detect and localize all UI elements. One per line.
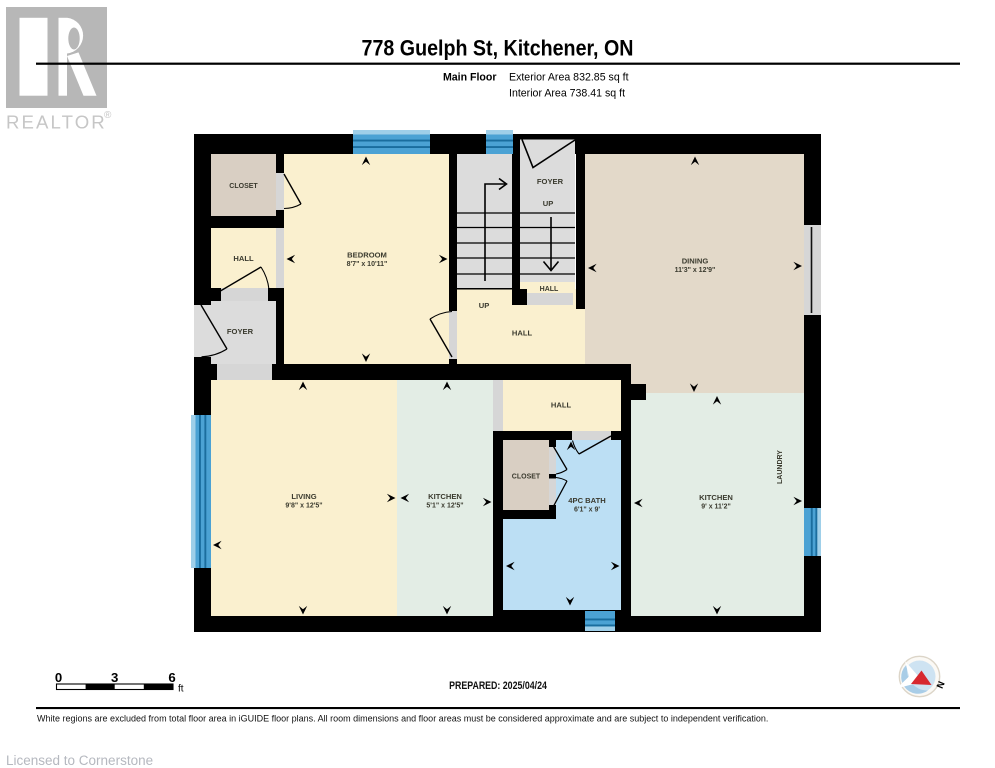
svg-text:FOYER: FOYER <box>227 327 254 336</box>
svg-text:HALL: HALL <box>540 286 559 293</box>
svg-text:8'7" x 10'11": 8'7" x 10'11" <box>347 261 388 268</box>
svg-text:LAUNDRY: LAUNDRY <box>777 450 784 484</box>
svg-text:UP: UP <box>543 199 554 208</box>
svg-text:REALTOR: REALTOR <box>6 112 107 133</box>
svg-text:5'1" x 12'5": 5'1" x 12'5" <box>426 503 463 510</box>
svg-text:778 Guelph St, Kitchener, ON: 778 Guelph St, Kitchener, ON <box>362 36 634 61</box>
svg-text:DINING: DINING <box>682 257 709 266</box>
svg-text:0: 0 <box>55 670 62 685</box>
svg-text:Interior Area 738.41 sq ft: Interior Area 738.41 sq ft <box>509 88 625 100</box>
svg-text:White regions are excluded fro: White regions are excluded from total fl… <box>37 714 768 724</box>
svg-text:HALL: HALL <box>512 329 533 338</box>
svg-text:LIVING: LIVING <box>291 492 316 501</box>
svg-text:Exterior Area 832.85 sq ft: Exterior Area 832.85 sq ft <box>509 72 629 84</box>
svg-text:FOYER: FOYER <box>537 177 564 186</box>
svg-text:9' x 11'2": 9' x 11'2" <box>701 504 731 511</box>
svg-text:CLOSET: CLOSET <box>229 183 258 190</box>
svg-text:®: ® <box>104 110 112 121</box>
svg-text:HALL: HALL <box>551 401 572 410</box>
svg-text:Main Floor: Main Floor <box>443 72 497 84</box>
svg-text:HALL: HALL <box>233 254 254 263</box>
svg-text:6: 6 <box>168 670 175 685</box>
svg-text:ft: ft <box>178 684 184 695</box>
svg-text:KITCHEN: KITCHEN <box>699 493 733 502</box>
svg-text:4PC BATH: 4PC BATH <box>568 496 605 505</box>
svg-text:6'1" x 9': 6'1" x 9' <box>574 507 600 514</box>
svg-text:CLOSET: CLOSET <box>512 474 541 481</box>
svg-text:9'8" x 12'5": 9'8" x 12'5" <box>285 503 322 510</box>
svg-text:11'3" x 12'9": 11'3" x 12'9" <box>675 267 716 274</box>
svg-text:PREPARED: 2025/04/24: PREPARED: 2025/04/24 <box>449 680 547 692</box>
svg-text:BEDROOM: BEDROOM <box>347 251 387 260</box>
svg-text:UP: UP <box>479 301 490 310</box>
svg-text:3: 3 <box>111 670 118 685</box>
svg-text:KITCHEN: KITCHEN <box>428 492 462 501</box>
svg-text:Licensed to Cornerstone: Licensed to Cornerstone <box>6 753 153 768</box>
